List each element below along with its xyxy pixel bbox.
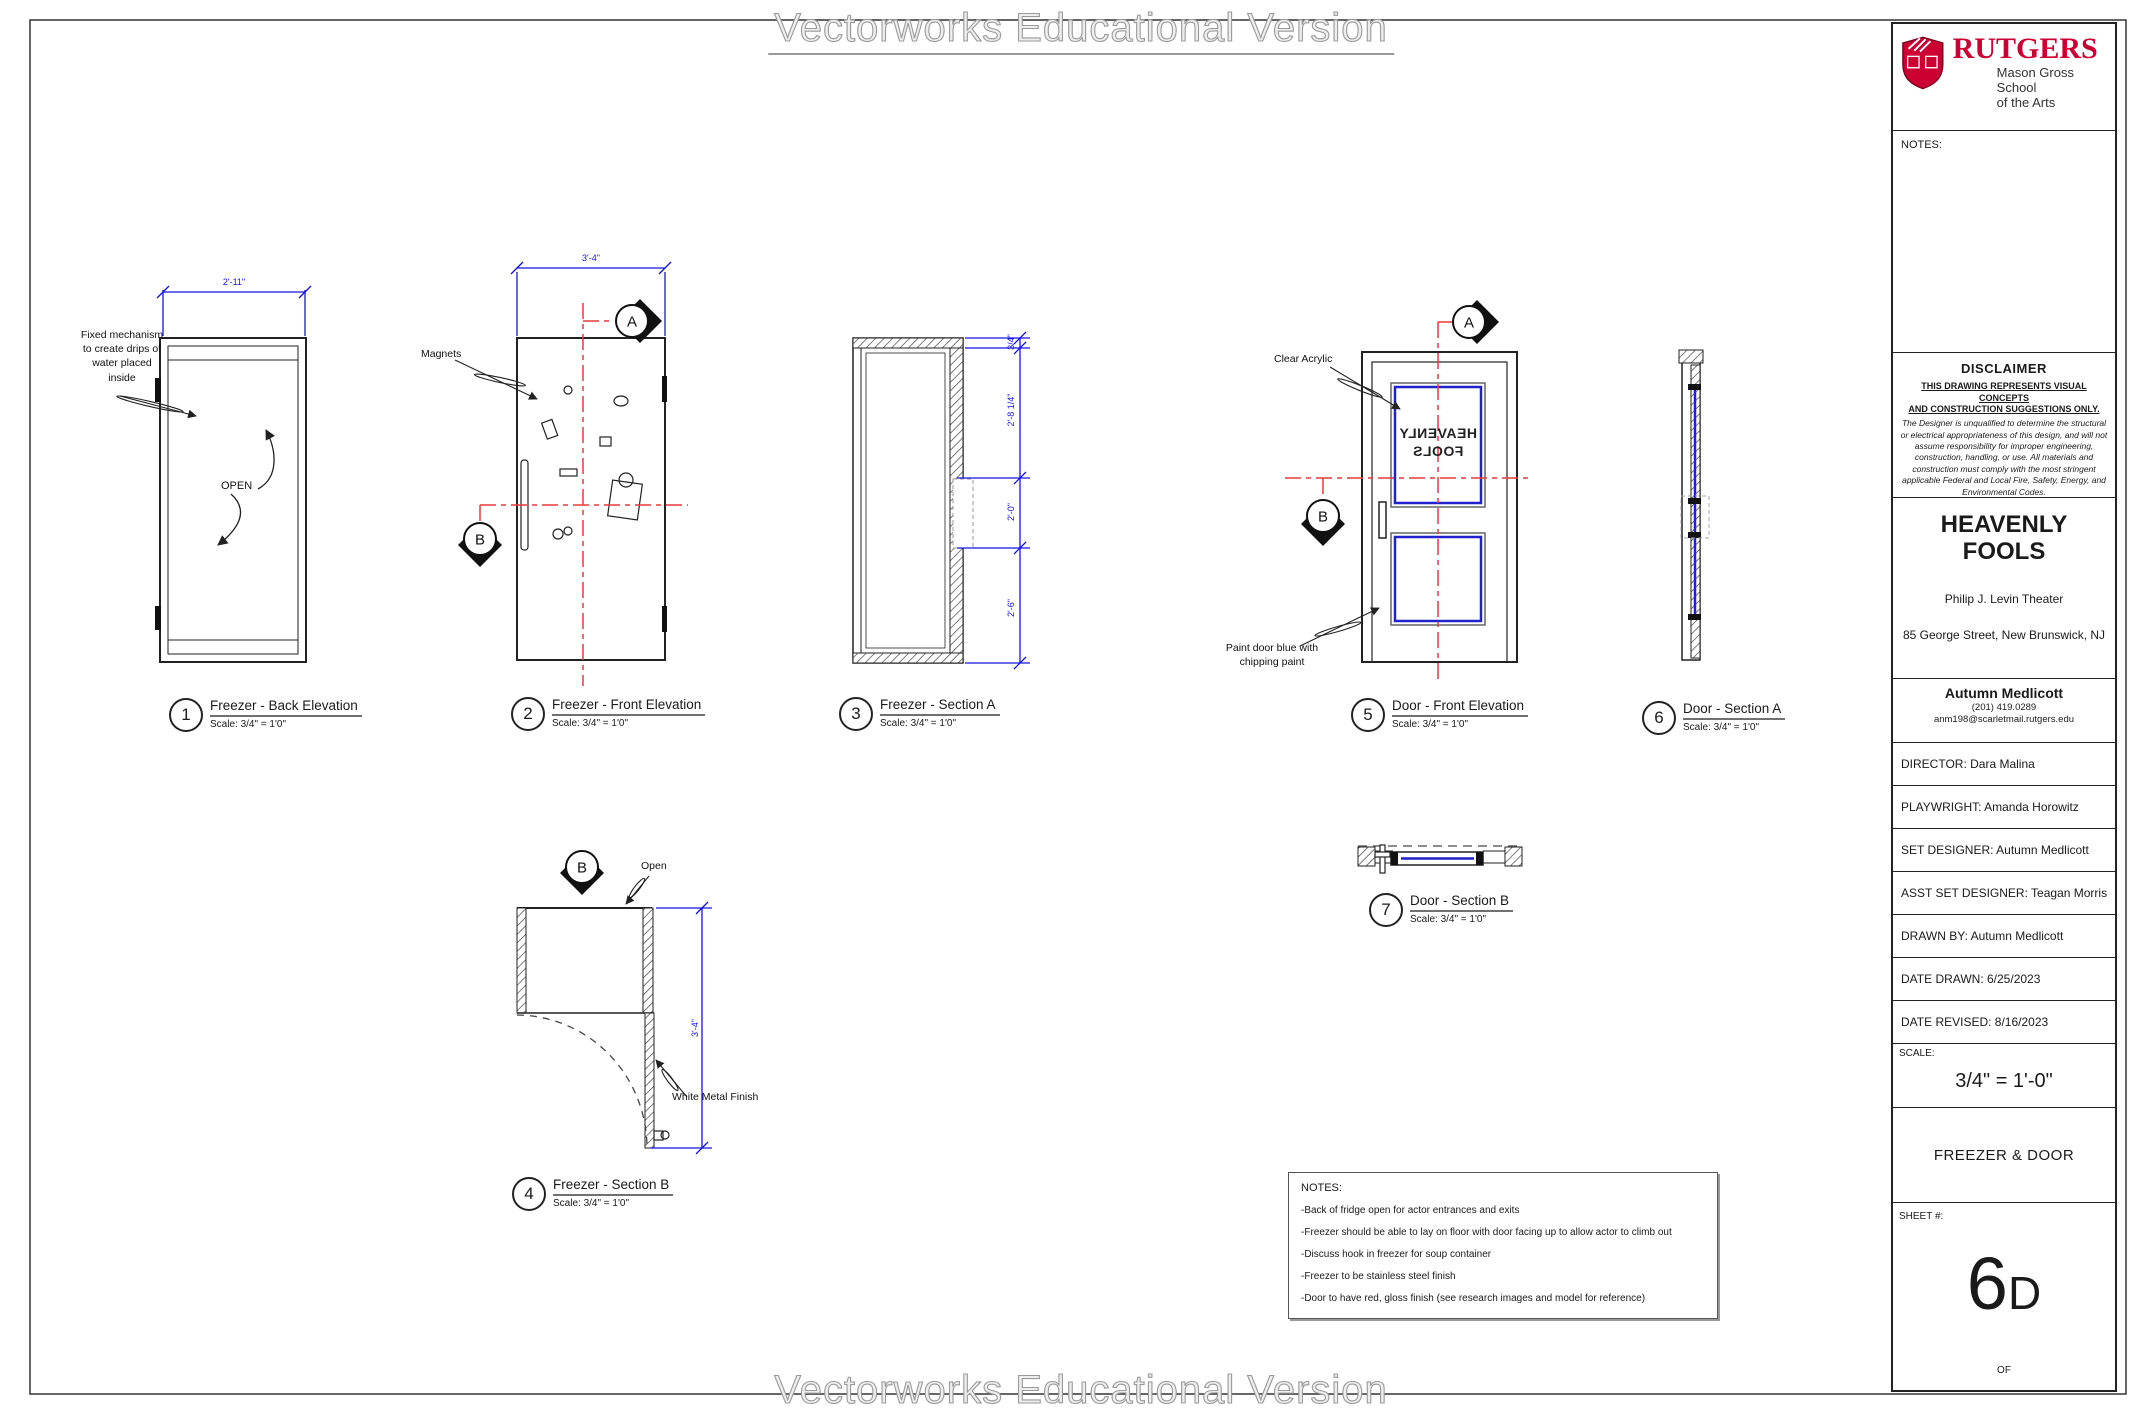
row-drawn-by: DRAWN BY: Autumn Medlicott xyxy=(1893,914,2115,957)
annotation-white-metal-finish: White Metal Finish xyxy=(672,1090,758,1104)
height-dimension xyxy=(650,902,712,1154)
drawing-title: Freezer - Section A xyxy=(880,697,1000,716)
hatched-header xyxy=(1679,350,1703,363)
rutgers-logo: RUTGERS Mason Gross School of the Arts xyxy=(1893,24,2115,130)
show-title-line2: FOOLS xyxy=(1963,538,2046,565)
section-marker-a: A xyxy=(616,299,662,343)
drawing-title: Door - Front Elevation xyxy=(1392,698,1528,717)
label-door-front-elevation: 5 Door - Front Elevation Scale: 3/4" = 1… xyxy=(1351,698,1528,732)
titleblock-notes-area: NOTES: xyxy=(1893,130,2115,352)
show-info: HEAVENLY FOOLS Philip J. Levin Theater 8… xyxy=(1893,497,2115,678)
freezer-section-b-drawing: B xyxy=(517,851,712,1154)
drawing-title: Door - Section B xyxy=(1410,893,1513,912)
drawing-number: 3 xyxy=(839,697,873,731)
sheet-number-label: SHEET #: xyxy=(1899,1211,1943,1222)
dimension-2-11: 2'-11" xyxy=(223,277,245,287)
row-date-revised: DATE REVISED: 8/16/2023 xyxy=(1893,1000,2115,1043)
rutgers-wordmark: RUTGERS xyxy=(1953,34,2109,64)
drawing-scale: Scale: 3/4" = 1'0" xyxy=(1683,722,1785,733)
annotation-open-section: Open xyxy=(641,859,667,873)
door-swing-arc xyxy=(517,1015,647,1148)
svg-text:B: B xyxy=(475,532,485,549)
annotation-clear-acrylic: Clear Acrylic xyxy=(1274,352,1332,366)
label-freezer-section-a: 3 Freezer - Section A Scale: 3/4" = 1'0" xyxy=(839,697,1000,731)
freezer-section-a-drawing xyxy=(853,332,1030,669)
designer-contact: Autumn Medlicott (201) 419.0289 anm198@s… xyxy=(1893,678,2115,742)
note-item: -Freezer to be stainless steel finish xyxy=(1301,1271,1705,1282)
school-line1: Mason Gross School xyxy=(1997,65,2074,95)
label-door-section-a: 6 Door - Section A Scale: 3/4" = 1'0" xyxy=(1642,701,1785,735)
svg-text:A: A xyxy=(1464,315,1474,332)
school-name: Mason Gross School of the Arts xyxy=(1997,66,2109,111)
door-section-b-drawing xyxy=(1358,845,1522,873)
door-in-section xyxy=(645,1013,654,1148)
label-door-section-b: 7 Door - Section B Scale: 3/4" = 1'0" xyxy=(1369,893,1513,927)
dimension-2-0: 2'-0" xyxy=(1006,503,1016,521)
svg-text:B: B xyxy=(1318,509,1328,526)
door-section-a-drawing xyxy=(1679,350,1709,660)
label-freezer-front-elevation: 2 Freezer - Front Elevation Scale: 3/4" … xyxy=(511,697,705,731)
hinge xyxy=(662,606,667,632)
of-label: OF xyxy=(1893,1365,2115,1376)
door-handle xyxy=(1379,502,1386,538)
note-item: -Door to have red, gloss finish (see res… xyxy=(1301,1293,1705,1304)
note-item: -Back of fridge open for actor entrances… xyxy=(1301,1205,1705,1216)
annotation-fixed-mechanism: Fixed mechanism to create drips of water… xyxy=(48,328,196,385)
dimension-3-4-height: 3'-4" xyxy=(690,1019,700,1037)
drawing-title: Freezer - Front Elevation xyxy=(552,697,705,716)
hinge xyxy=(155,606,161,630)
sheet-number-main: 6 xyxy=(1967,1247,2008,1321)
drafting-sheet: A B xyxy=(0,0,2132,1410)
sheet-title: FREEZER & DOOR xyxy=(1893,1107,2115,1202)
disclaimer: DISCLAIMER THIS DRAWING REPRESENTS VISUA… xyxy=(1893,352,2115,497)
section-marker-b: B xyxy=(458,523,502,567)
drawing-scale: Scale: 3/4" = 1'0" xyxy=(1392,719,1528,730)
annotation-paint-door: Paint door blue with chipping paint xyxy=(1218,641,1326,669)
row-date-drawn: DATE DRAWN: 6/25/2023 xyxy=(1893,957,2115,1000)
scale-value: 3/4" = 1'-0" xyxy=(1893,1070,2115,1093)
venue: Philip J. Levin Theater xyxy=(1893,592,2115,606)
rutgers-shield-icon xyxy=(1901,34,1945,92)
title-block: RUTGERS Mason Gross School of the Arts N… xyxy=(1891,22,2117,1392)
svg-text:B: B xyxy=(577,860,587,877)
mirrored-heavenly-fools-text: HEAVENLY FOOLS xyxy=(1393,424,1483,460)
sheet-number-suffix: D xyxy=(2008,1270,2041,1316)
drawing-scale: Scale: 3/4" = 1'0" xyxy=(552,718,705,729)
row-asst-set-designer: ASST SET DESIGNER: Teagan Morris xyxy=(1893,871,2115,914)
hatched-wall xyxy=(853,338,963,348)
show-title: HEAVENLY FOOLS xyxy=(1893,512,2115,566)
section-marker-a: A xyxy=(1453,300,1499,344)
hatched-jamb xyxy=(1358,847,1375,866)
vectorworks-watermark-bottom: Vectorworks Educational Version xyxy=(768,1368,1394,1410)
note-item: -Discuss hook in freezer for soup contai… xyxy=(1301,1249,1705,1260)
disclaimer-body: The Designer is unqualified to determine… xyxy=(1899,418,2109,498)
annotation-open-back: OPEN xyxy=(221,479,252,494)
drawing-title: Freezer - Section B xyxy=(553,1177,673,1196)
sheet-number-box: SHEET #: 6D OF xyxy=(1893,1202,2115,1390)
hatched-wall xyxy=(643,908,653,1013)
row-playwright: PLAYWRIGHT: Amanda Horowitz xyxy=(1893,785,2115,828)
drawing-scale: Scale: 3/4" = 1'0" xyxy=(210,719,362,730)
hatched-wall xyxy=(853,653,963,663)
row-director: DIRECTOR: Dara Malina xyxy=(1893,742,2115,785)
notes-title: NOTES: xyxy=(1301,1182,1705,1194)
dimension-3-4: 3'-4" xyxy=(582,253,600,263)
designer-email: anm198@scarletmail.rutgers.edu xyxy=(1893,714,2115,725)
dimension-2-6: 2'-6" xyxy=(1006,599,1016,617)
label-freezer-back-elevation: 1 Freezer - Back Elevation Scale: 3/4" =… xyxy=(169,698,362,732)
drawing-number: 6 xyxy=(1642,701,1676,735)
row-set-designer: SET DESIGNER: Autumn Medlicott xyxy=(1893,828,2115,871)
drawing-number: 7 xyxy=(1369,893,1403,927)
disclaimer-heading: DISCLAIMER xyxy=(1899,361,2109,376)
door-handle xyxy=(1380,845,1385,873)
drawing-number: 2 xyxy=(511,697,545,731)
section-marker-b: B xyxy=(1301,500,1345,546)
drawing-number: 1 xyxy=(169,698,203,732)
section-marker-b: B xyxy=(560,851,604,895)
hatched-wall xyxy=(517,908,526,1013)
drawing-scale: Scale: 3/4" = 1'0" xyxy=(553,1198,673,1209)
school-line2: of the Arts xyxy=(1997,95,2056,110)
scale-label: SCALE: xyxy=(1899,1048,1935,1059)
hinge xyxy=(662,376,667,402)
dimension-3q: 3/4" xyxy=(1006,334,1016,350)
drawing-scale: Scale: 3/4" = 1'0" xyxy=(1410,914,1513,925)
disclaimer-underlined: THIS DRAWING REPRESENTS VISUAL CONCEPTS … xyxy=(1899,381,2109,416)
sheet-number: 6D xyxy=(1893,1247,2115,1321)
vectorworks-watermark-top: Vectorworks Educational Version xyxy=(768,6,1394,55)
drawing-title: Freezer - Back Elevation xyxy=(210,698,362,717)
note-item: -Freezer should be able to lay on floor … xyxy=(1301,1227,1705,1238)
annotation-magnets: Magnets xyxy=(421,347,461,361)
designer-phone: (201) 419.0289 xyxy=(1893,702,2115,713)
drawing-scale: Scale: 3/4" = 1'0" xyxy=(880,718,1000,729)
freezer-front-elevation-drawing: A B xyxy=(455,262,688,686)
dimension-2-8q: 2'-8 1/4" xyxy=(1006,394,1016,427)
drawing-title: Door - Section A xyxy=(1683,701,1785,720)
hidden-door-dashed xyxy=(953,479,973,548)
leader-open xyxy=(626,876,649,904)
address: 85 George Street, New Brunswick, NJ xyxy=(1893,628,2115,642)
designer-name: Autumn Medlicott xyxy=(1893,685,2115,701)
label-freezer-section-b: 4 Freezer - Section B Scale: 3/4" = 1'0" xyxy=(512,1177,673,1211)
drawing-number: 4 xyxy=(512,1177,546,1211)
drawing-number: 5 xyxy=(1351,698,1385,732)
svg-text:A: A xyxy=(627,314,637,331)
hatched-jamb xyxy=(1505,847,1522,866)
show-title-line1: HEAVENLY xyxy=(1941,511,2068,538)
scale-box: SCALE: 3/4" = 1'-0" xyxy=(1893,1043,2115,1107)
notes-label: NOTES: xyxy=(1893,131,2115,159)
notes-box: NOTES: -Back of fridge open for actor en… xyxy=(1288,1172,1718,1319)
